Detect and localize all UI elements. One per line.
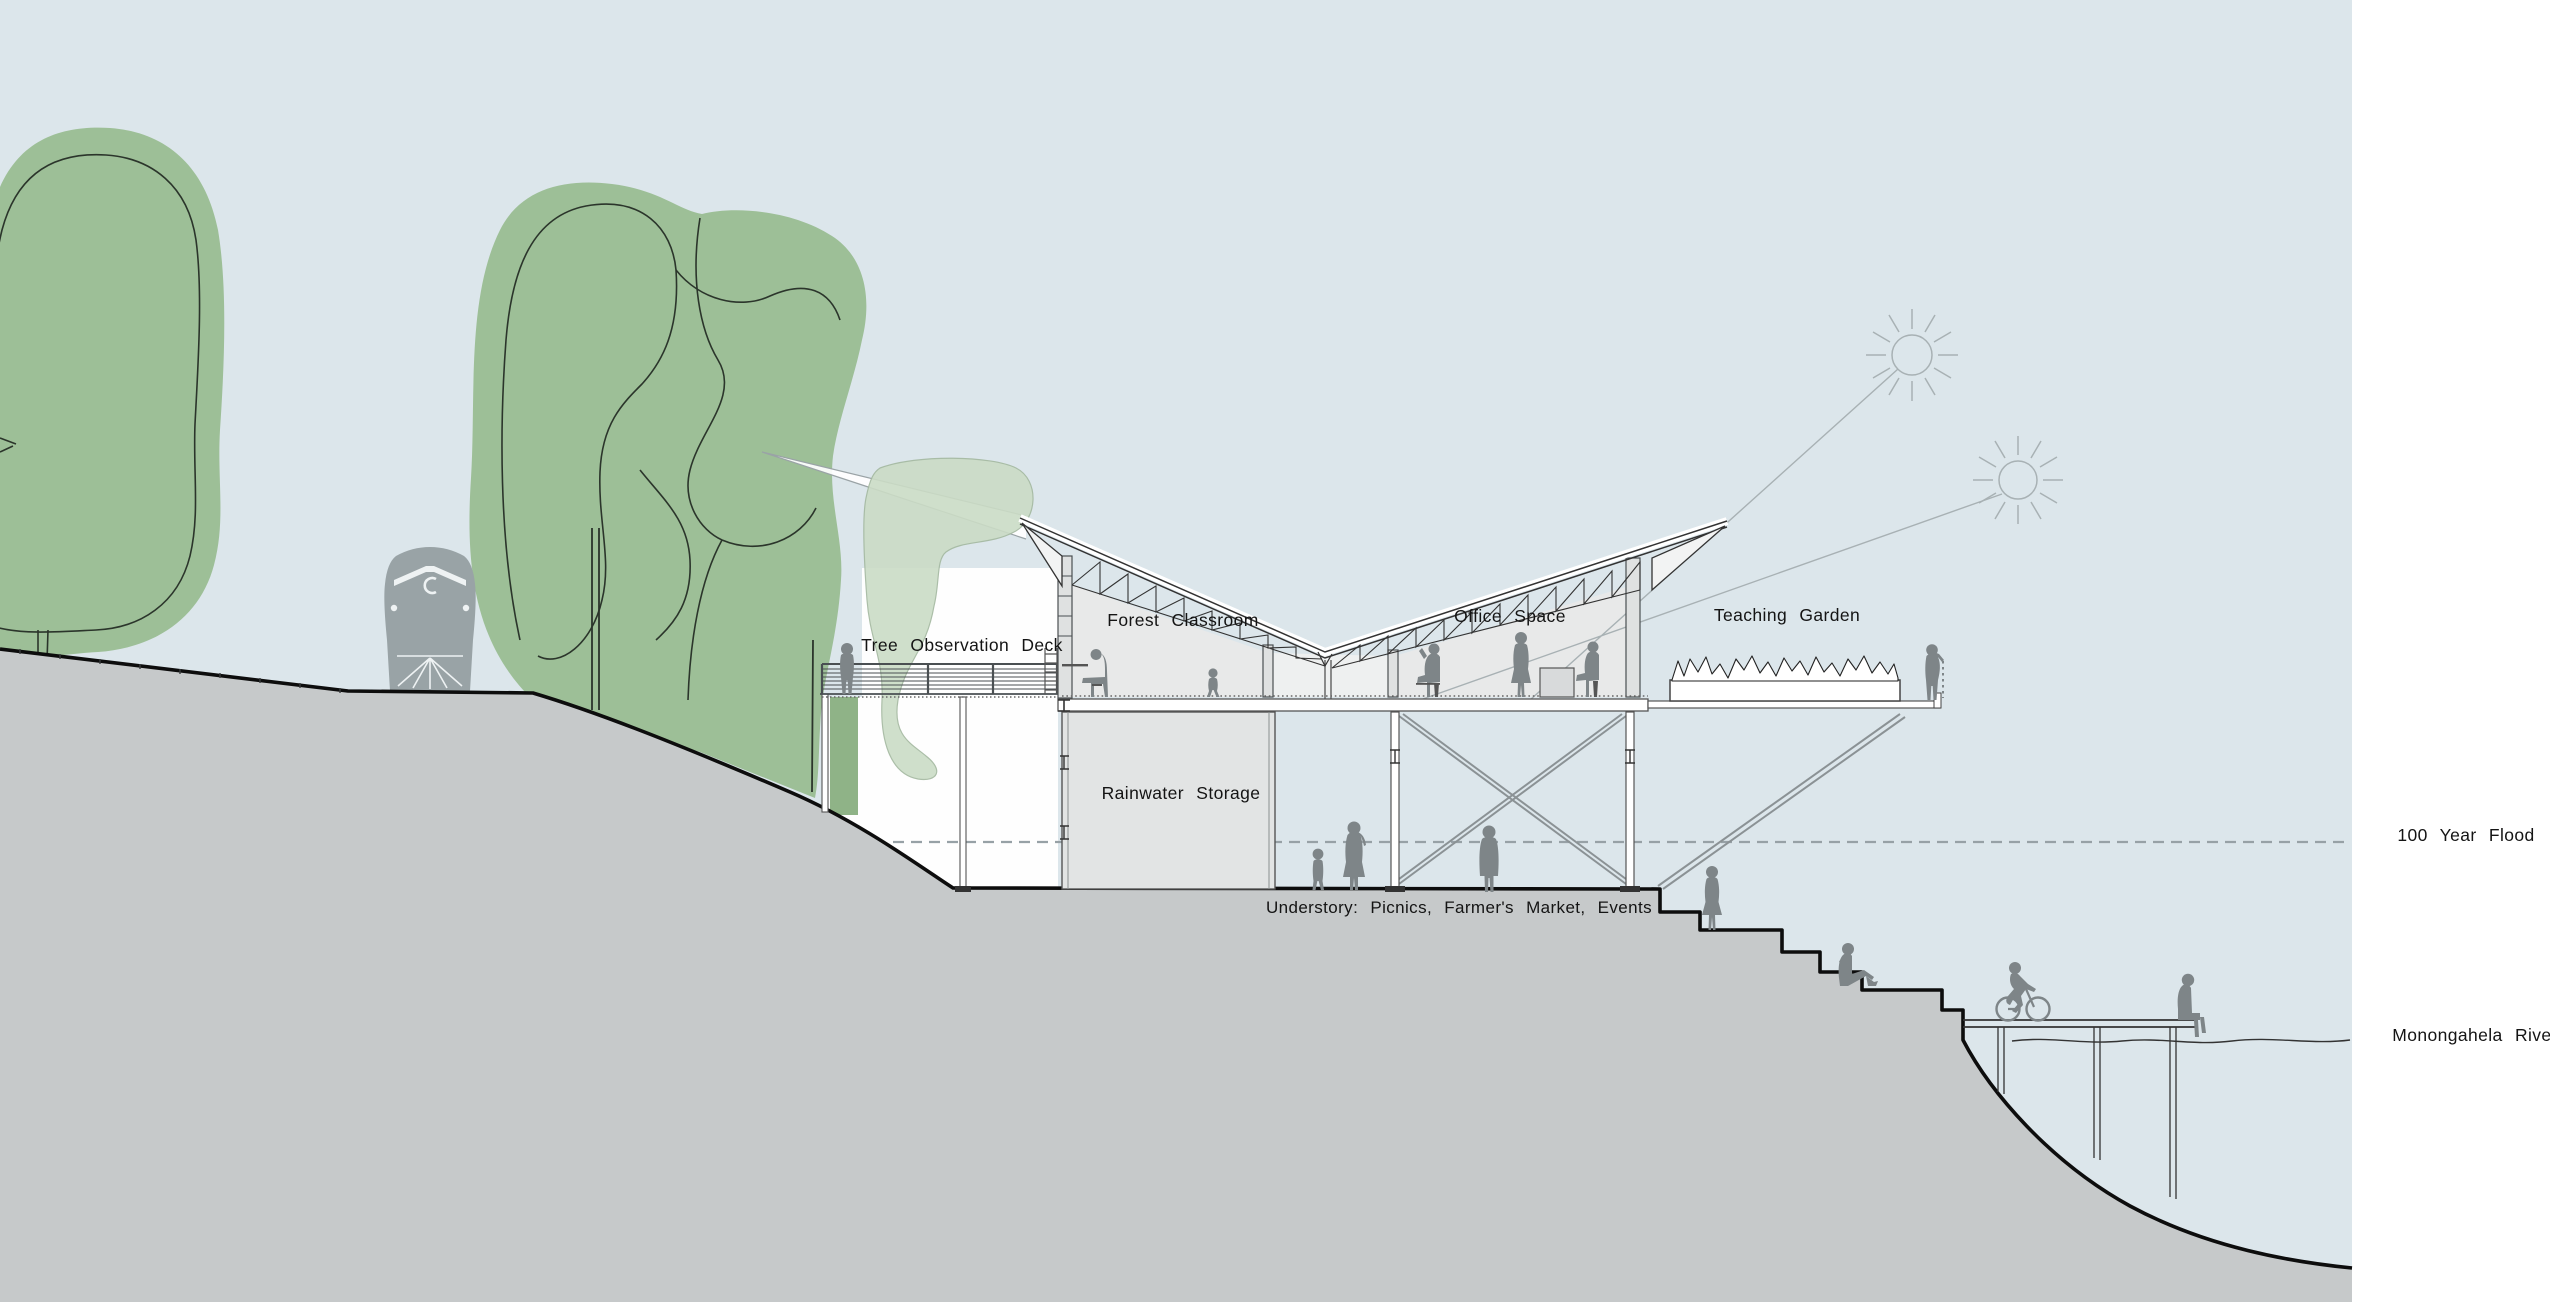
train-light-right xyxy=(463,605,469,611)
classroom-right-wall xyxy=(1263,645,1273,697)
deck-post-left xyxy=(822,694,828,812)
label-rainwater-storage: Rainwater Storage xyxy=(1102,783,1261,803)
column-left xyxy=(1391,712,1399,889)
train-light-left xyxy=(391,605,397,611)
garden-grass xyxy=(1672,656,1898,681)
train xyxy=(384,547,475,699)
label-forest-classroom: Forest Classroom xyxy=(1107,610,1259,630)
label-teaching-garden: Teaching Garden xyxy=(1714,605,1860,625)
column-right xyxy=(1626,712,1634,889)
section-drawing: Tree Observation Deck Forest Classroom O… xyxy=(0,0,2550,1302)
label-tree-observation-deck: Tree Observation Deck xyxy=(861,635,1063,655)
garden-planter xyxy=(1670,680,1900,701)
slope-vegetation-strip xyxy=(830,697,858,815)
label-100-year-flood: 100 Year Flood xyxy=(2397,825,2534,845)
label-understory: Understory: Picnics, Farmer's Market, Ev… xyxy=(1266,898,1652,917)
tree-left xyxy=(0,128,224,663)
label-monongahela-river: Monongahela River xyxy=(2392,1025,2550,1045)
office-right-wall xyxy=(1626,558,1640,697)
office-left-wall xyxy=(1388,650,1398,697)
label-office-space: Office Space xyxy=(1454,606,1566,626)
deck-post-mid xyxy=(960,697,966,889)
paper-right-margin xyxy=(2352,0,2550,1302)
